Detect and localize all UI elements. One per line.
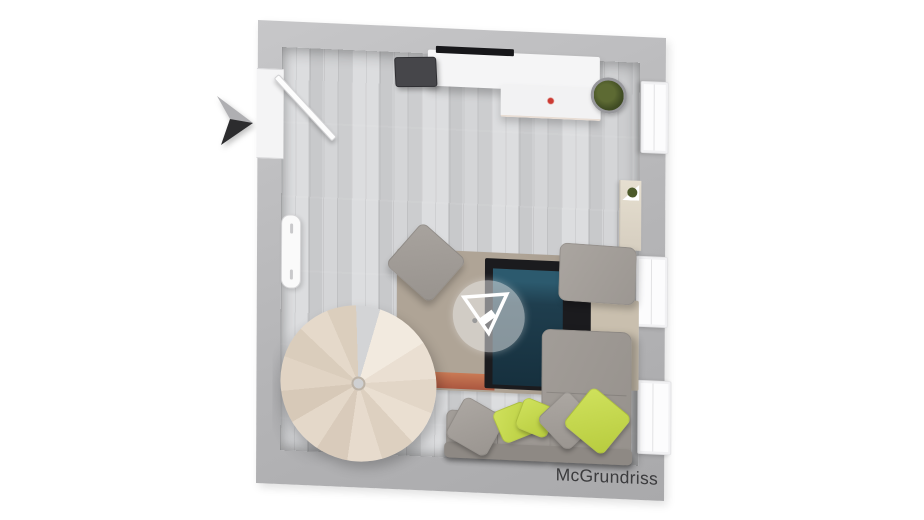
potted-plant-icon	[591, 77, 627, 115]
square-pouf	[558, 242, 637, 305]
watermark-brand-text: McGrundriss	[556, 464, 659, 490]
entrance-arrow-icon	[212, 92, 260, 156]
room-outline-walls: McGrundriss	[256, 20, 666, 501]
radiator	[281, 214, 301, 289]
wall-shelf	[619, 180, 641, 251]
window-middle	[636, 256, 668, 328]
window-bottom	[637, 380, 671, 455]
watermark-logo-badge	[453, 279, 525, 354]
inverted-triangle-logo-icon	[453, 279, 525, 354]
white-table	[501, 85, 601, 121]
window-top	[641, 81, 669, 154]
floor-plan-render: McGrundriss	[0, 0, 924, 520]
red-flower	[547, 97, 555, 105]
tv-screen-flat	[394, 57, 437, 87]
shelf-plant-icon	[627, 187, 637, 197]
